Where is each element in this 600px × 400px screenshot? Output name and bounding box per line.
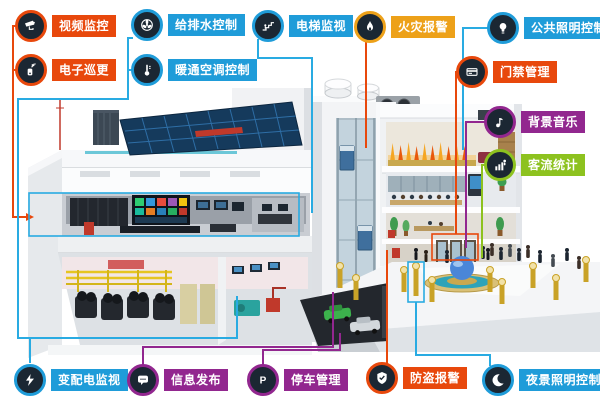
line-music	[466, 122, 487, 248]
patrol-device-icon	[15, 54, 47, 86]
callout-night-lighting: 夜景照明控制	[482, 364, 600, 396]
callout-burglar-alarm: 防盗报警	[366, 362, 467, 394]
callout-fire-alarm: 火灾报警	[354, 11, 455, 43]
line-night-lighting	[416, 302, 490, 366]
callout-background-music: 背景音乐	[484, 106, 585, 138]
callout-passenger-flow: 客流统计	[484, 149, 585, 181]
line-elevator	[258, 39, 312, 213]
callout-elevator-monitor: 电梯监视	[252, 10, 353, 42]
callout-water-supply: 给排水控制	[131, 9, 245, 41]
callout-parking-management: P 停车管理	[247, 364, 348, 396]
callout-label: 公共照明控制	[524, 17, 600, 39]
callout-label: 客流统计	[521, 154, 585, 176]
shield-icon	[366, 362, 398, 394]
callout-label: 视频监控	[52, 15, 116, 37]
callout-label: 变配电监视	[51, 369, 128, 391]
svg-text:P: P	[260, 376, 267, 387]
access-card-icon	[456, 56, 488, 88]
callout-label: 电梯监视	[289, 15, 353, 37]
callout-power-monitoring: 变配电监视	[14, 364, 128, 396]
people-stats-icon	[484, 149, 516, 181]
callout-label: 门禁管理	[493, 61, 557, 83]
line-access	[456, 72, 459, 234]
bollard-highlight	[408, 262, 424, 302]
light-bulb-icon	[487, 12, 519, 44]
flame-icon	[354, 11, 386, 43]
callout-hvac-control: 暖通空调控制	[131, 54, 257, 86]
entrance-highlight	[432, 234, 478, 260]
callout-label: 背景音乐	[521, 111, 585, 133]
callout-video-surveillance: 视频监控	[15, 10, 116, 42]
callout-label: 暖通空调控制	[168, 59, 257, 81]
callout-access-control: 门禁管理	[456, 56, 557, 88]
callout-electronic-patrol: 电子巡更	[15, 54, 116, 86]
lightning-icon	[14, 364, 46, 396]
callout-label: 防盗报警	[403, 367, 467, 389]
callout-label: 电子巡更	[52, 59, 116, 81]
building-automation-diagram: 视频监控 电子巡更 给排水控制 暖通空调控制 电梯监视 火灾报警 公共照明控制 …	[0, 0, 600, 400]
moon-icon	[482, 364, 514, 396]
callout-info-release: 信息发布	[127, 364, 228, 396]
parking-icon: P	[247, 364, 279, 396]
arrow-control-room	[26, 213, 34, 221]
message-bubble-icon	[127, 364, 159, 396]
thermostat-icon	[131, 54, 163, 86]
line-parking	[263, 333, 340, 365]
callout-label: 信息发布	[164, 369, 228, 391]
callout-public-lighting: 公共照明控制	[487, 12, 600, 44]
callout-label: 夜景照明控制	[519, 369, 600, 391]
callout-label: 火灾报警	[391, 16, 455, 38]
pump-fan-icon	[131, 9, 163, 41]
music-note-icon	[484, 106, 516, 138]
control-room-highlight	[29, 193, 299, 236]
callout-label: 给排水控制	[168, 14, 245, 36]
callout-label: 停车管理	[284, 369, 348, 391]
cctv-camera-icon	[15, 10, 47, 42]
escalator-icon	[252, 10, 284, 42]
